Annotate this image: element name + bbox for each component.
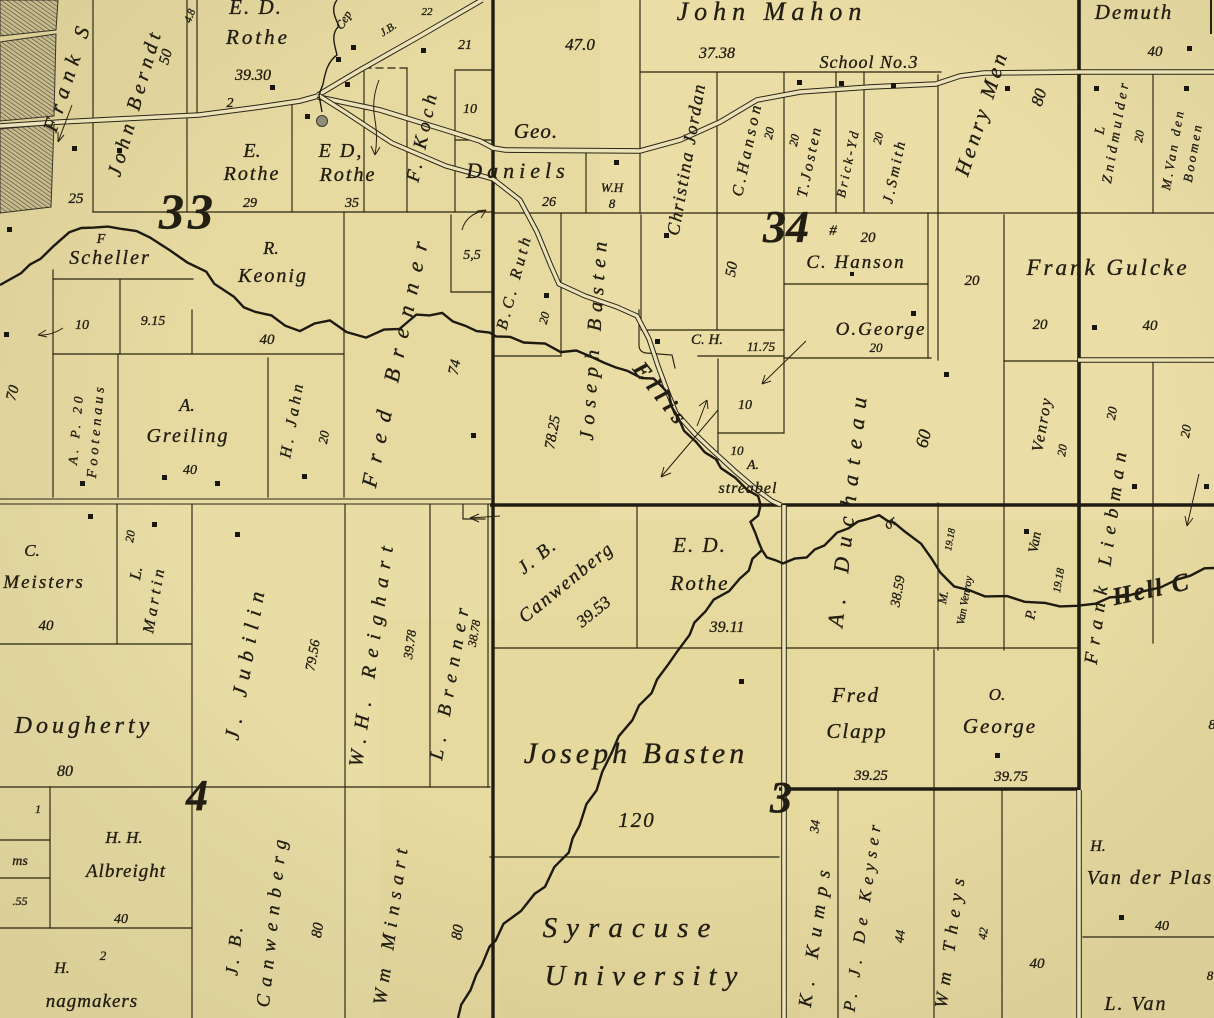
svg-text:Meisters: Meisters [2,572,84,593]
svg-text:ms: ms [12,854,28,869]
svg-text:L. Van: L. Van [1103,993,1167,1015]
svg-text:Rothe: Rothe [225,25,290,49]
svg-text:O.George: O.George [836,319,927,340]
svg-text:20: 20 [1054,443,1070,457]
svg-text:Rothe: Rothe [670,571,730,595]
svg-text:Demuth: Demuth [1094,0,1174,24]
svg-text:9.15: 9.15 [141,314,166,329]
svg-text:E D,: E D, [318,140,364,162]
svg-text:120: 120 [618,808,656,832]
svg-text:25: 25 [69,191,85,207]
svg-text:39.75: 39.75 [993,769,1028,785]
svg-text:Keonig: Keonig [237,265,308,287]
svg-text:C. H.: C. H. [691,332,723,348]
svg-text:E.: E. [242,140,260,162]
svg-text:John Mahon: John Mahon [677,0,868,26]
svg-text:O.: O. [989,685,1006,704]
svg-text:M.: M. [935,590,951,606]
svg-text:H.: H. [53,960,70,977]
svg-text:Rothe: Rothe [319,164,377,186]
svg-text:35: 35 [344,196,359,211]
svg-text:C. Hanson: C. Hanson [806,252,905,273]
svg-text:L.: L. [127,565,146,582]
svg-text:E. D.: E. D. [228,0,283,19]
svg-text:39.25: 39.25 [853,768,888,784]
svg-text:Geo.: Geo. [514,119,558,143]
svg-text:40: 40 [1143,318,1159,334]
svg-text:80: 80 [57,763,73,780]
svg-text:10: 10 [463,102,477,117]
svg-text:20: 20 [1131,129,1147,143]
svg-text:School No.3: School No.3 [820,52,919,72]
svg-text:40: 40 [260,332,276,348]
svg-text:R.: R. [262,238,279,258]
svg-text:A.: A. [746,458,759,473]
svg-text:8: 8 [1207,968,1214,983]
svg-text:Scheller: Scheller [69,247,151,269]
svg-text:37.38: 37.38 [698,45,735,62]
svg-text:20: 20 [122,529,138,543]
svg-text:20: 20 [861,230,877,246]
svg-text:34: 34 [806,818,823,834]
svg-text:8: 8 [1209,718,1214,733]
svg-text:40: 40 [114,912,128,927]
svg-text:Frank Gulcke: Frank Gulcke [1025,255,1189,280]
svg-text:Syracuse: Syracuse [543,912,720,944]
svg-text:3: 3 [769,773,792,822]
svg-text:40: 40 [1148,44,1164,60]
svg-text:47.0: 47.0 [565,35,595,54]
svg-text:20: 20 [870,340,884,355]
svg-text:nagmakers: nagmakers [46,991,138,1012]
svg-text:A.: A. [178,395,195,415]
svg-text:streabel: streabel [719,480,778,497]
svg-text:33: 33 [158,183,217,239]
svg-text:34: 34 [762,201,809,252]
svg-text:10: 10 [75,318,89,333]
svg-text:University: University [545,960,746,992]
svg-text:W.H: W.H [601,180,624,195]
svg-text:40: 40 [39,618,55,634]
svg-text:Greiling: Greiling [146,425,229,447]
svg-text:F: F [96,232,106,247]
svg-text:George: George [963,714,1037,738]
svg-text:Joseph Basten: Joseph Basten [524,737,748,770]
svg-text:20: 20 [1033,317,1049,333]
svg-text:C.: C. [24,541,40,560]
svg-text:39.11: 39.11 [709,619,745,636]
svg-text:22: 22 [422,6,434,18]
svg-text:40: 40 [1030,956,1046,972]
svg-text:44: 44 [891,928,908,943]
svg-text:Daniels: Daniels [465,158,569,183]
svg-text:2: 2 [227,96,234,111]
svg-text:40: 40 [1155,919,1169,934]
svg-text:Dougherty: Dougherty [14,713,154,739]
svg-text:21: 21 [458,38,472,53]
svg-text:42: 42 [975,927,991,941]
svg-text:Albreight: Albreight [84,861,166,882]
svg-text:8: 8 [609,196,616,211]
svg-text:1: 1 [35,802,41,816]
svg-text:10: 10 [731,443,745,458]
svg-text:H. H.: H. H. [104,828,142,847]
svg-text:10: 10 [738,398,752,413]
svg-text:H.: H. [1089,838,1106,855]
svg-text:20: 20 [965,273,981,289]
svg-text:Van der Plas: Van der Plas [1087,867,1213,889]
svg-text:40: 40 [183,463,197,478]
svg-text:Fred: Fred [831,683,880,707]
svg-text:E. D.: E. D. [672,533,727,557]
svg-text:2: 2 [100,948,107,963]
svg-text:#: # [829,223,837,239]
svg-text:Rothe: Rothe [223,163,281,185]
svg-text:11.75: 11.75 [747,339,776,354]
svg-text:29: 29 [243,196,257,211]
svg-text:26: 26 [542,195,556,210]
svg-text:4: 4 [185,771,208,820]
svg-text:Clapp: Clapp [826,719,887,743]
svg-text:5,5: 5,5 [463,248,481,263]
svg-text:.55: .55 [13,894,28,908]
svg-text:39.30: 39.30 [234,67,271,84]
